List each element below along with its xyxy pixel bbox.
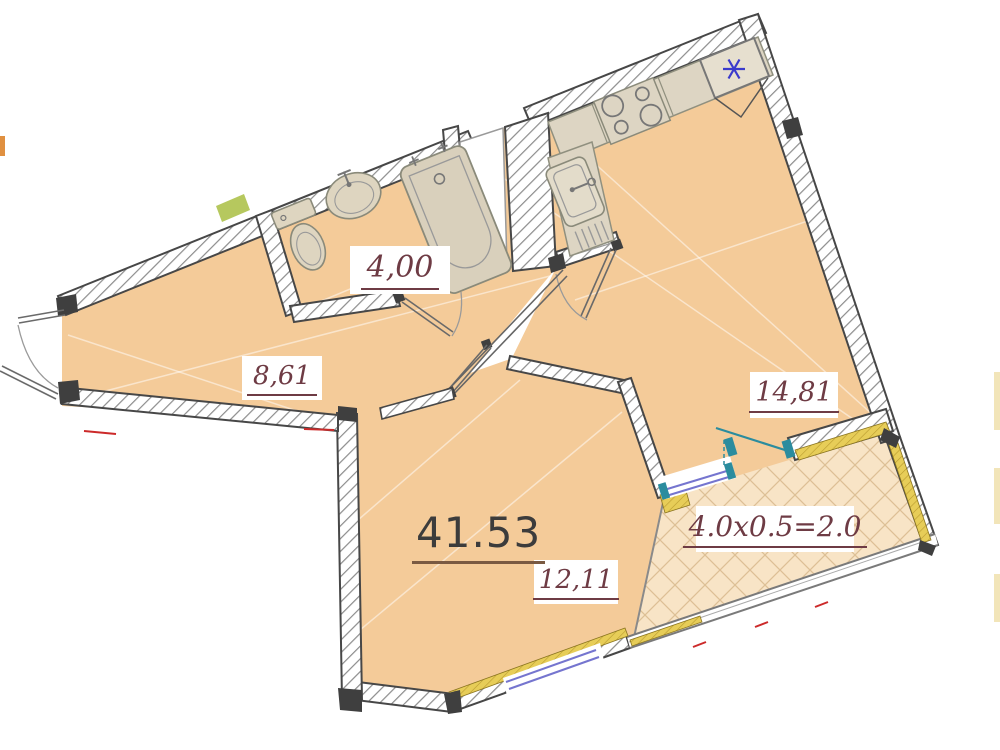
hallway-area-label: 8,61 — [242, 356, 322, 400]
edge-marks-right — [994, 372, 1000, 622]
bathroom-area-label: 4,00 — [350, 246, 450, 294]
wall-shaft-right — [505, 113, 556, 271]
floor-plan-page: 4,00 8,61 14,81 12,11 4.0x0.5=2.0 41.53 — [0, 0, 1000, 750]
bedroom-area-label: 12,11 — [534, 560, 618, 604]
edge-mark-left — [0, 136, 5, 156]
kitchen-living-area-label: 14,81 — [750, 372, 838, 418]
total-area-label: 41.53 — [412, 508, 545, 557]
balcony-area-label: 4.0x0.5=2.0 — [696, 506, 854, 552]
floor-plan-canvas — [0, 0, 1000, 750]
wall-bedroom-left — [337, 413, 362, 700]
green-patch — [216, 194, 250, 222]
